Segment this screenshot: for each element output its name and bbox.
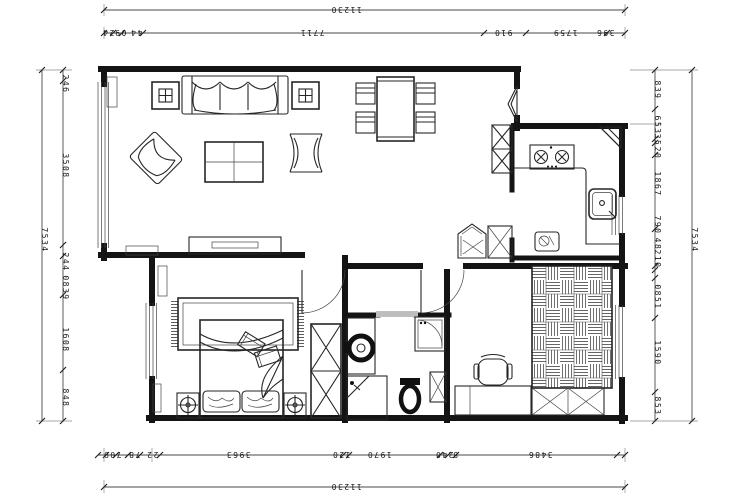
dim-label: 709 bbox=[103, 450, 122, 459]
tatami-mat bbox=[532, 266, 612, 388]
door-study bbox=[421, 270, 464, 313]
dim-label: 78 bbox=[128, 450, 141, 459]
lounge-chair bbox=[290, 134, 322, 172]
vanity-basin bbox=[344, 318, 375, 374]
door-bathroom-sliding bbox=[376, 311, 418, 317]
toilet-icon bbox=[400, 378, 420, 412]
tall-cabinet-dining bbox=[492, 125, 512, 173]
bed-pillows bbox=[203, 391, 279, 412]
dim-label: 839 bbox=[653, 81, 662, 100]
dim-label: 1759 bbox=[552, 28, 577, 37]
dim-bottom-chain: 709 78 22 3963 120 1970 240 8 3486 bbox=[95, 448, 628, 462]
kitchen-counter bbox=[514, 168, 620, 244]
dim-label: 0851 bbox=[653, 284, 662, 309]
dim-label: 44 bbox=[130, 28, 143, 37]
dim-label: 48 bbox=[653, 238, 662, 251]
washing-machine-icon bbox=[415, 317, 445, 351]
dim-label: 1970 bbox=[366, 450, 391, 459]
dim-label: 22 bbox=[146, 450, 159, 459]
dim-label: 246 bbox=[61, 75, 70, 94]
dim-label: 240 bbox=[435, 450, 454, 459]
dim-left-chain: 246 3508 244 0839 1608 848 bbox=[60, 67, 70, 424]
radiator-bedroom-top bbox=[158, 266, 167, 296]
dim-label: 09 bbox=[114, 28, 127, 37]
window-study-right bbox=[612, 305, 623, 379]
door-bedroom bbox=[302, 270, 345, 313]
nightstand-left bbox=[177, 393, 199, 418]
office-chair bbox=[474, 355, 512, 386]
study-desk bbox=[455, 386, 531, 415]
dining-chairs bbox=[356, 83, 435, 133]
dim-label: 910 bbox=[494, 28, 513, 37]
dim-label: 653 bbox=[653, 116, 662, 135]
dim-label: 120 bbox=[332, 450, 351, 459]
dim-label: 7534 bbox=[690, 227, 699, 252]
side-table-right bbox=[292, 82, 319, 109]
tv-cabinet bbox=[189, 237, 281, 254]
dim-bottom-overall: 11230 bbox=[101, 480, 628, 493]
sofa bbox=[182, 76, 288, 114]
nightstand-right bbox=[284, 393, 306, 418]
window-bedroom-left bbox=[146, 303, 157, 379]
storage-bench bbox=[532, 388, 604, 415]
dim-label: 20 bbox=[653, 147, 662, 160]
stove-icon bbox=[530, 145, 574, 169]
dim-label: 3486 bbox=[527, 450, 552, 459]
dim-label: 1590 bbox=[653, 340, 662, 365]
dim-label: 210 bbox=[653, 250, 662, 269]
dim-label: 244 bbox=[61, 253, 70, 272]
dim-top-overall: 11230 bbox=[101, 4, 628, 16]
dim-label: 35 bbox=[653, 134, 662, 147]
side-table-left bbox=[152, 82, 179, 109]
dim-label: 3508 bbox=[61, 153, 70, 178]
dining-table bbox=[377, 77, 414, 141]
bath-cabinet bbox=[430, 372, 446, 402]
shower-tiles bbox=[347, 376, 387, 420]
wardrobe bbox=[311, 324, 341, 418]
dim-left-overall: 7534 bbox=[36, 67, 72, 424]
dim-label: 853 bbox=[653, 397, 662, 416]
armchair bbox=[129, 131, 183, 185]
dim-label: 848 bbox=[61, 389, 70, 408]
dim-label: 11230 bbox=[330, 5, 362, 14]
fridge-icon bbox=[600, 127, 621, 148]
bedroom-rug bbox=[171, 298, 304, 350]
dim-right-overall: 7534 bbox=[689, 67, 699, 424]
dim-label: 1608 bbox=[61, 327, 70, 352]
dim-label: 8 bbox=[452, 450, 458, 459]
dim-right-chain: 839 653 35 20 1867 790 48 210 0851 1590 … bbox=[630, 67, 698, 424]
dim-label: 790 bbox=[653, 216, 662, 235]
coffee-table bbox=[205, 142, 263, 182]
dim-label: 1867 bbox=[653, 171, 662, 196]
floor-plan-screenshot: 11230 24 09 44 7711 910 1759 396 709 78 … bbox=[0, 0, 740, 500]
dim-label: 7711 bbox=[299, 28, 324, 37]
floor-plan-drawing: 11230 24 09 44 7711 910 1759 396 709 78 … bbox=[0, 0, 740, 500]
dim-top-chain: 24 09 44 7711 910 1759 396 bbox=[101, 27, 628, 39]
dim-label: 3963 bbox=[225, 450, 250, 459]
hallway-cabinets bbox=[458, 224, 512, 258]
small-appliance-icon bbox=[535, 232, 559, 251]
dim-label: 11230 bbox=[330, 482, 362, 491]
dim-label: 396 bbox=[596, 28, 615, 37]
dim-label: 7534 bbox=[40, 227, 49, 252]
dim-label: 0839 bbox=[61, 275, 70, 300]
dim-label: 24 bbox=[102, 28, 115, 37]
